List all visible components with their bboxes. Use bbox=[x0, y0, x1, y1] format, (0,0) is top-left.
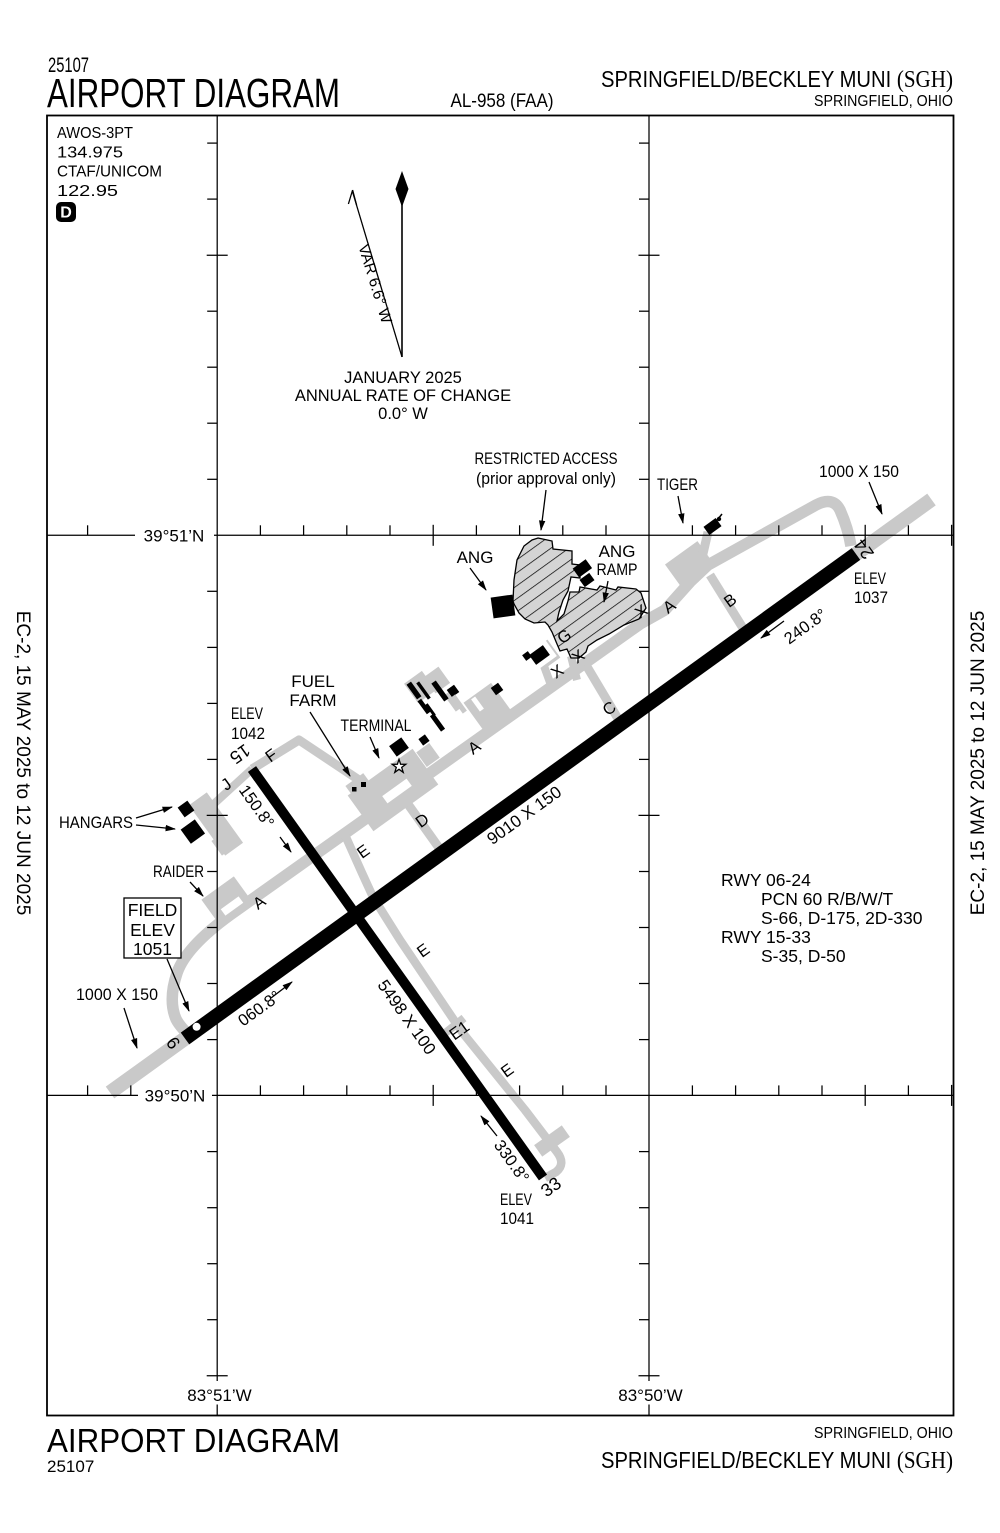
svg-text:AWOS-3PT: AWOS-3PT bbox=[57, 125, 133, 142]
svg-text:SPRINGFIELD/BECKLEY MUNI (SGH): SPRINGFIELD/BECKLEY MUNI (SGH) bbox=[601, 66, 953, 93]
svg-text:1037: 1037 bbox=[854, 588, 888, 607]
svg-text:1000 X 150: 1000 X 150 bbox=[76, 985, 158, 1004]
svg-text:39°50’N: 39°50’N bbox=[145, 1086, 206, 1105]
svg-text:1051: 1051 bbox=[133, 939, 172, 959]
svg-text:RESTRICTED ACCESS: RESTRICTED ACCESS bbox=[475, 449, 618, 468]
svg-text:15: 15 bbox=[226, 740, 254, 768]
svg-text:B: B bbox=[721, 590, 740, 611]
svg-text:83°50’W: 83°50’W bbox=[618, 1386, 682, 1405]
svg-text:ANG: ANG bbox=[457, 548, 494, 567]
svg-text:0.0° W: 0.0° W bbox=[378, 405, 428, 423]
svg-text:1000 X 150: 1000 X 150 bbox=[819, 462, 899, 481]
svg-text:122.95: 122.95 bbox=[57, 183, 118, 200]
svg-text:ELEV: ELEV bbox=[231, 704, 263, 723]
svg-text:ELEV: ELEV bbox=[500, 1190, 532, 1209]
svg-text:RWY 15-33: RWY 15-33 bbox=[721, 927, 811, 947]
svg-text:240.8°: 240.8° bbox=[781, 605, 830, 648]
svg-text:AL-958 (FAA): AL-958 (FAA) bbox=[451, 91, 554, 112]
svg-text:JANUARY 2025: JANUARY 2025 bbox=[344, 369, 462, 387]
svg-text:HANGARS: HANGARS bbox=[59, 813, 133, 832]
svg-text:ELEV: ELEV bbox=[130, 920, 175, 940]
svg-text:SPRINGFIELD, OHIO: SPRINGFIELD, OHIO bbox=[814, 1425, 953, 1442]
svg-text:ANNUAL RATE OF CHANGE: ANNUAL RATE OF CHANGE bbox=[295, 387, 511, 405]
svg-text:83°51’W: 83°51’W bbox=[187, 1386, 251, 1405]
svg-text:FUEL: FUEL bbox=[291, 672, 334, 691]
svg-text:S-35, D-50: S-35, D-50 bbox=[761, 946, 846, 966]
svg-text:EC-2, 15 MAY 2025 to 12 JUN: EC-2, 15 MAY 2025 to 12 JUN 2025 bbox=[968, 611, 989, 916]
svg-text:ELEV: ELEV bbox=[854, 569, 886, 588]
svg-text:39°51’N: 39°51’N bbox=[144, 526, 205, 545]
svg-text:1042: 1042 bbox=[231, 724, 265, 743]
svg-text:ANG: ANG bbox=[599, 542, 636, 561]
svg-text:PCN 60 R/B/W/T: PCN 60 R/B/W/T bbox=[761, 889, 894, 909]
svg-text:RWY 06-24: RWY 06-24 bbox=[721, 870, 811, 890]
svg-text:FIELD: FIELD bbox=[128, 900, 178, 920]
svg-text:TIGER: TIGER bbox=[657, 475, 698, 494]
svg-text:AIRPORT DIAGRAM: AIRPORT DIAGRAM bbox=[47, 1422, 340, 1459]
svg-text:FARM: FARM bbox=[289, 691, 336, 710]
svg-text:1041: 1041 bbox=[500, 1209, 534, 1228]
svg-text:CTAF/UNICOM: CTAF/UNICOM bbox=[57, 164, 162, 181]
svg-text:TERMINAL: TERMINAL bbox=[341, 716, 412, 735]
svg-text:VAR 6.6° W: VAR 6.6° W bbox=[354, 242, 394, 325]
svg-text:SPRINGFIELD, OHIO: SPRINGFIELD, OHIO bbox=[814, 93, 953, 110]
svg-text:S-66, D-175, 2D-330: S-66, D-175, 2D-330 bbox=[761, 908, 923, 928]
svg-text:134.975: 134.975 bbox=[57, 145, 123, 162]
svg-text:D: D bbox=[60, 205, 72, 222]
svg-text:EC-2, 15 MAY 2025 to 12 JUN: EC-2, 15 MAY 2025 to 12 JUN 2025 bbox=[12, 611, 33, 916]
svg-text:25107: 25107 bbox=[47, 1457, 94, 1476]
svg-text:SPRINGFIELD/BECKLEY MUNI (SGH): SPRINGFIELD/BECKLEY MUNI (SGH) bbox=[601, 1447, 953, 1474]
svg-text:(prior approval only): (prior approval only) bbox=[476, 469, 616, 488]
svg-text:RAMP: RAMP bbox=[597, 560, 638, 579]
svg-text:RAIDER: RAIDER bbox=[153, 862, 204, 881]
svg-text:AIRPORT DIAGRAM: AIRPORT DIAGRAM bbox=[47, 70, 340, 116]
